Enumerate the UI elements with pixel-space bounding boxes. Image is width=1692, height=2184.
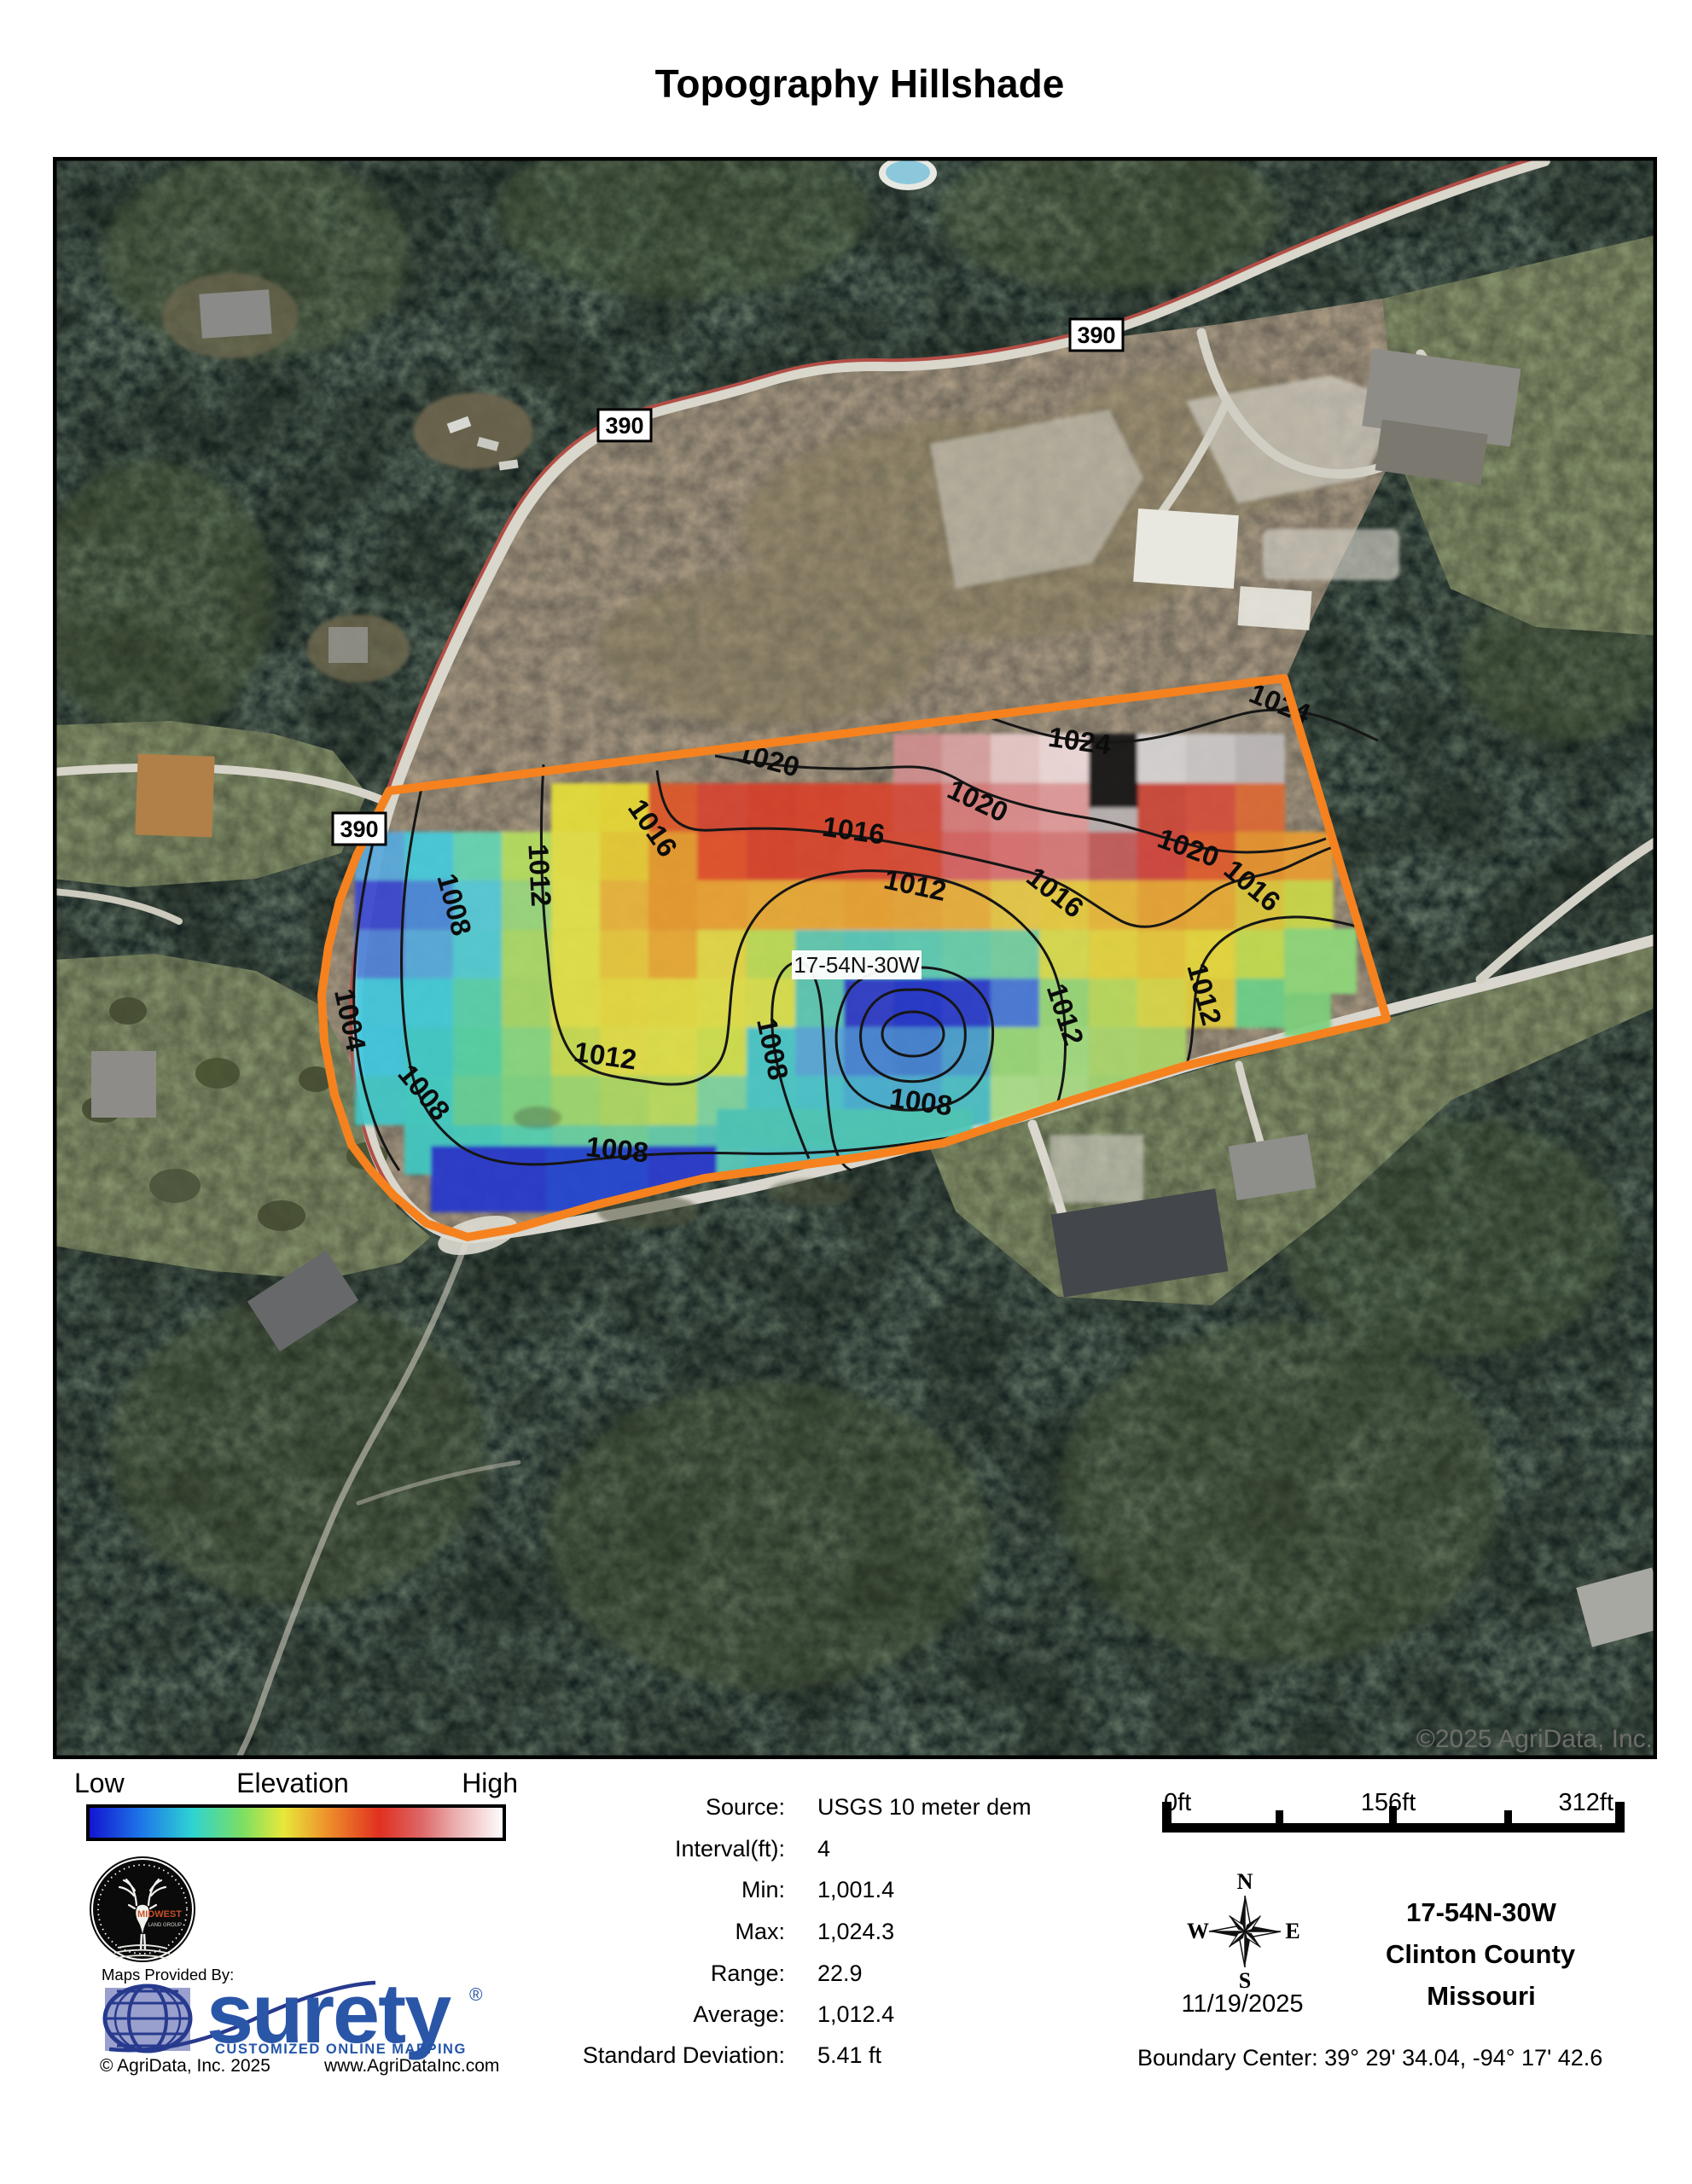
- svg-text:Source:: Source:: [706, 1794, 785, 1820]
- svg-text:1012: 1012: [522, 843, 557, 907]
- svg-text:156ft: 156ft: [1361, 1789, 1416, 1816]
- svg-text:CUSTOMIZED ONLINE MAPPING: CUSTOMIZED ONLINE MAPPING: [215, 2042, 467, 2057]
- svg-text:Range:: Range:: [711, 1960, 785, 1986]
- svg-text:390: 390: [340, 816, 378, 842]
- svg-text:1,001.4: 1,001.4: [817, 1877, 894, 1902]
- svg-text:©2025 AgriData, Inc.: ©2025 AgriData, Inc.: [1416, 1725, 1653, 1753]
- svg-text:High: High: [462, 1768, 518, 1798]
- svg-text:17-54N-30W: 17-54N-30W: [794, 952, 920, 978]
- svg-text:USGS 10 meter dem: USGS 10 meter dem: [817, 1794, 1032, 1820]
- svg-text:11/19/2025: 11/19/2025: [1182, 1990, 1304, 2018]
- svg-text:22.9: 22.9: [817, 1960, 863, 1986]
- svg-text:1008: 1008: [584, 1130, 650, 1168]
- svg-text:MIDWEST: MIDWEST: [137, 1909, 182, 1920]
- svg-text:LAND GROUP: LAND GROUP: [148, 1923, 182, 1928]
- svg-text:Max:: Max:: [735, 1919, 785, 1944]
- svg-text:Missouri: Missouri: [1427, 1981, 1535, 2011]
- svg-text:Elevation: Elevation: [236, 1768, 349, 1798]
- svg-text:1,012.4: 1,012.4: [817, 2001, 894, 2027]
- svg-text:© AgriData, Inc. 2025: © AgriData, Inc. 2025: [100, 2056, 270, 2076]
- svg-text:S: S: [1239, 1968, 1251, 1993]
- svg-text:1,024.3: 1,024.3: [817, 1919, 894, 1944]
- svg-text:Boundary Center: 39° 29' 34.04: Boundary Center: 39° 29' 34.04, -94° 17'…: [1137, 2045, 1602, 2071]
- svg-text:Average:: Average:: [693, 2001, 785, 2027]
- svg-text:E: E: [1285, 1919, 1300, 1943]
- svg-text:390: 390: [1077, 322, 1115, 348]
- svg-text:N: N: [1237, 1869, 1253, 1894]
- svg-text:Standard Deviation:: Standard Deviation:: [583, 2042, 785, 2068]
- svg-text:W: W: [1187, 1919, 1209, 1943]
- svg-text:390: 390: [605, 413, 643, 439]
- svg-text:Min:: Min:: [741, 1877, 785, 1902]
- svg-text:312ft: 312ft: [1559, 1789, 1614, 1816]
- svg-text:5.41 ft: 5.41 ft: [817, 2042, 882, 2068]
- svg-text:Clinton County: Clinton County: [1386, 1939, 1576, 1969]
- svg-text:®: ®: [469, 1985, 483, 2005]
- svg-text:www.AgriDataInc.com: www.AgriDataInc.com: [323, 2056, 499, 2076]
- svg-text:Interval(ft):: Interval(ft):: [675, 1836, 785, 1862]
- svg-text:Low: Low: [74, 1768, 125, 1798]
- svg-text:17-54N-30W: 17-54N-30W: [1406, 1897, 1556, 1927]
- svg-text:4: 4: [817, 1836, 830, 1862]
